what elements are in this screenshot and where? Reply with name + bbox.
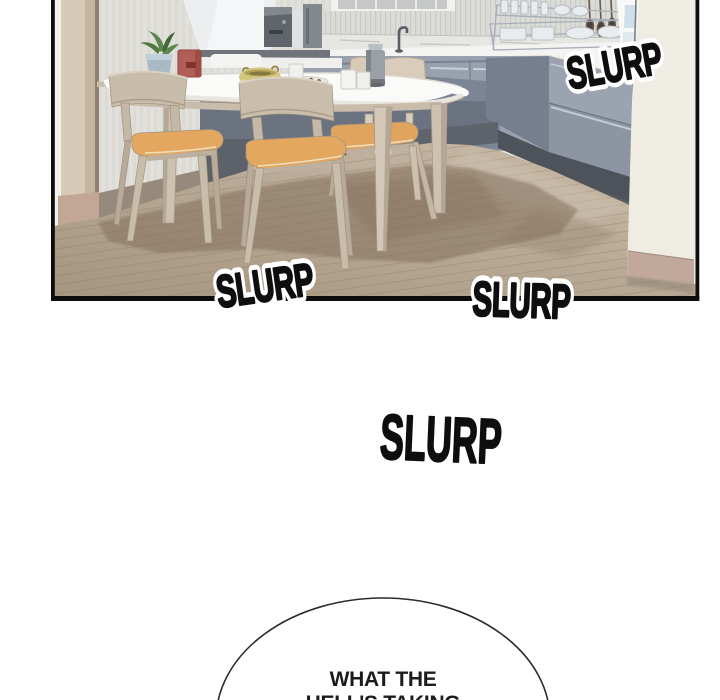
svg-text:WHAT THE: WHAT THE [330, 668, 437, 691]
svg-text:HELL'S TAKING: HELL'S TAKING [306, 692, 461, 700]
svg-text:SLURP: SLURP [379, 401, 504, 478]
svg-text:SLURP: SLURP [472, 272, 572, 330]
